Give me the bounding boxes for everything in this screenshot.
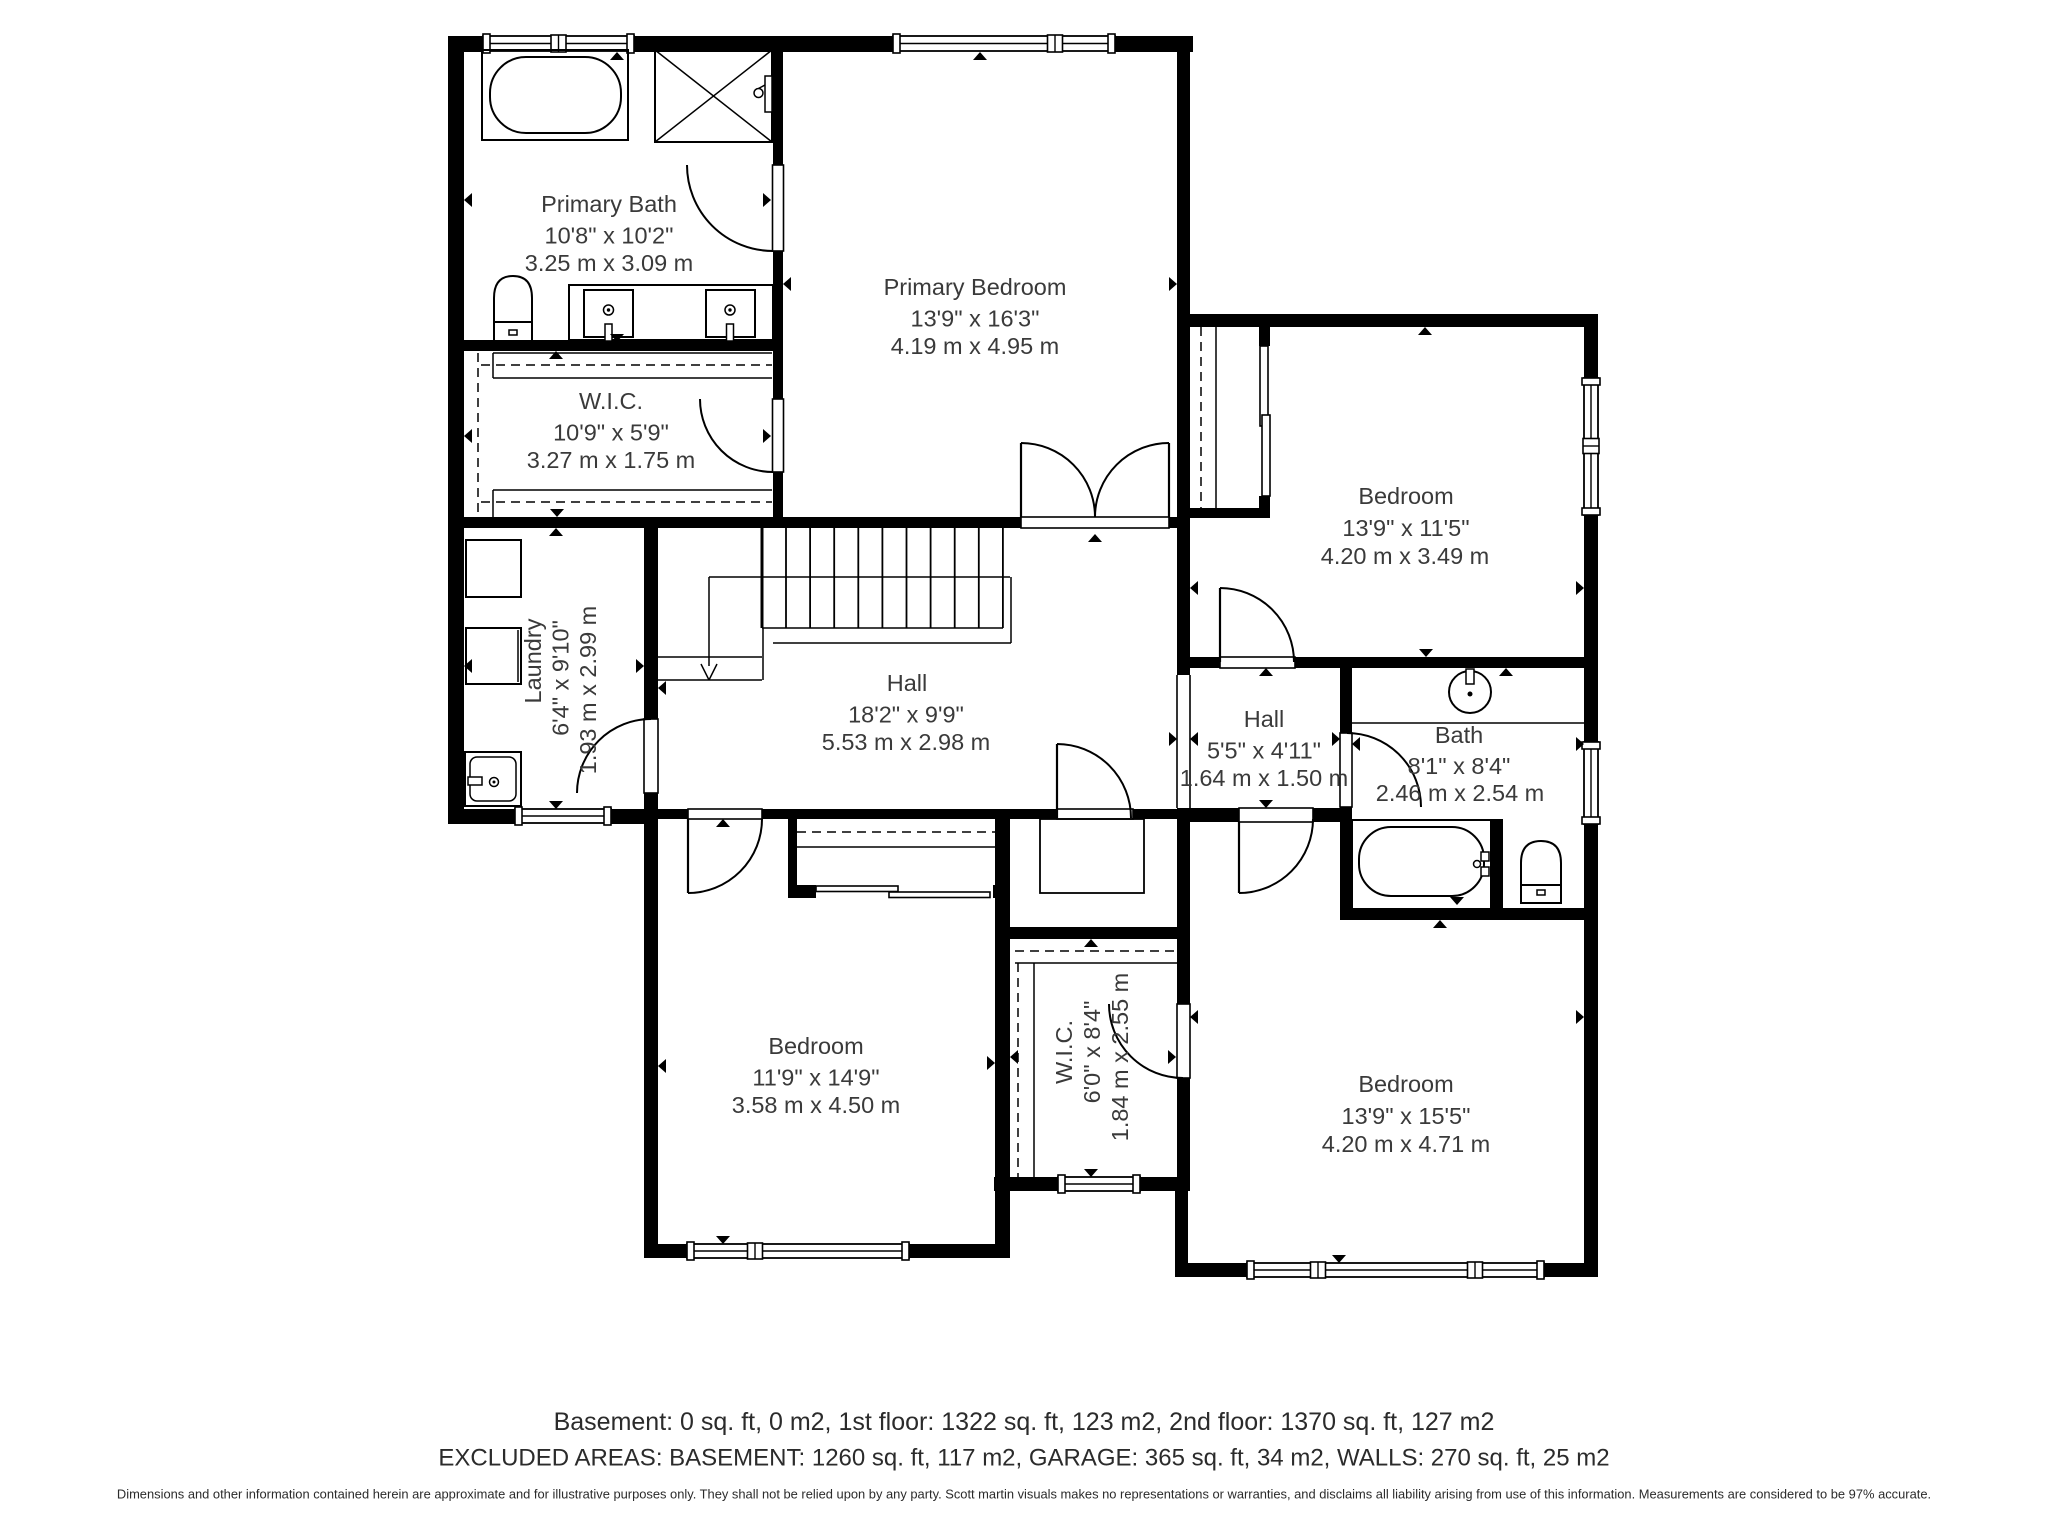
svg-text:18'2" x 9'9": 18'2" x 9'9" [848, 702, 964, 728]
svg-text:5'5" x 4'11": 5'5" x 4'11" [1207, 738, 1321, 764]
svg-text:4.20 m x 4.71 m: 4.20 m x 4.71 m [1322, 1131, 1491, 1157]
svg-text:Primary Bath: Primary Bath [541, 191, 677, 217]
svg-text:5.53 m x 2.98 m: 5.53 m x 2.98 m [822, 729, 991, 755]
svg-text:1.93 m x 2.99 m: 1.93 m x 2.99 m [575, 606, 601, 775]
svg-text:10'9" x 5'9": 10'9" x 5'9" [553, 420, 669, 446]
svg-text:Bath: Bath [1435, 722, 1483, 748]
svg-text:Basement: 0 sq. ft, 0 m2, 1st: Basement: 0 sq. ft, 0 m2, 1st floor: 132… [554, 1408, 1495, 1436]
svg-text:3.58 m x 4.50 m: 3.58 m x 4.50 m [732, 1092, 901, 1118]
svg-text:4.20 m x 3.49 m: 4.20 m x 3.49 m [1321, 543, 1490, 569]
svg-text:4.19 m x 4.95 m: 4.19 m x 4.95 m [891, 333, 1060, 359]
svg-text:11'9" x 14'9": 11'9" x 14'9" [752, 1065, 879, 1091]
svg-text:2.46 m x 2.54 m: 2.46 m x 2.54 m [1376, 780, 1545, 806]
svg-text:8'1" x 8'4": 8'1" x 8'4" [1408, 753, 1511, 779]
svg-text:1.84 m x 2.55 m: 1.84 m x 2.55 m [1107, 973, 1133, 1142]
svg-text:Bedroom: Bedroom [1358, 1071, 1453, 1097]
svg-text:Primary Bedroom: Primary Bedroom [884, 274, 1067, 300]
svg-text:13'9" x 11'5": 13'9" x 11'5" [1342, 515, 1469, 541]
svg-text:Dimensions and other informati: Dimensions and other information contain… [117, 1487, 1931, 1502]
svg-text:Bedroom: Bedroom [1358, 483, 1453, 509]
svg-text:Laundry: Laundry [520, 618, 546, 703]
svg-text:6'0" x 8'4": 6'0" x 8'4" [1079, 1001, 1105, 1104]
svg-text:10'8" x 10'2": 10'8" x 10'2" [545, 223, 674, 249]
svg-text:W.I.C.: W.I.C. [1051, 1020, 1077, 1084]
svg-text:Hall: Hall [887, 670, 927, 696]
svg-text:13'9" x 15'5": 13'9" x 15'5" [1342, 1103, 1471, 1129]
svg-text:W.I.C.: W.I.C. [579, 388, 643, 414]
svg-text:1.64 m x 1.50 m: 1.64 m x 1.50 m [1180, 765, 1349, 791]
svg-text:EXCLUDED AREAS: BASEMENT: 1260: EXCLUDED AREAS: BASEMENT: 1260 sq. ft, 1… [438, 1445, 1609, 1472]
svg-text:Bedroom: Bedroom [768, 1033, 863, 1059]
svg-text:3.27 m x 1.75 m: 3.27 m x 1.75 m [527, 447, 696, 473]
svg-text:13'9" x 16'3": 13'9" x 16'3" [911, 306, 1040, 332]
svg-text:Hall: Hall [1244, 706, 1284, 732]
svg-text:3.25 m x 3.09 m: 3.25 m x 3.09 m [525, 250, 694, 276]
svg-text:6'4" x 9'10": 6'4" x 9'10" [548, 620, 574, 736]
